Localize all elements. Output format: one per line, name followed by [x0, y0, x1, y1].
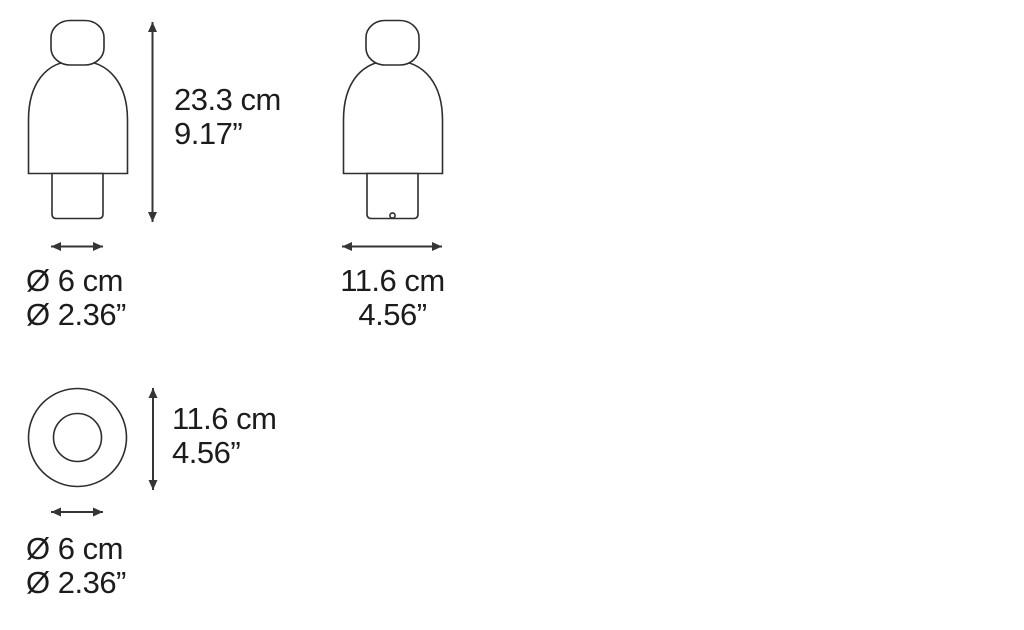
top-view-inner-diameter-label: Ø 6 cm Ø 2.36” — [26, 532, 126, 600]
lamp-front-view — [29, 21, 128, 219]
top-view-inner-diameter-inch: Ø 2.36” — [26, 566, 126, 600]
diagram-linework — [0, 0, 1024, 630]
top-view-outer-circle — [29, 389, 127, 487]
top-view-height-label: 11.6 cm 4.56” — [172, 402, 276, 470]
front-height-cm: 23.3 cm — [174, 83, 281, 117]
side-width-inch: 4.56” — [338, 298, 447, 332]
front-height-label: 23.3 cm 9.17” — [174, 83, 281, 151]
cable-exit-detail — [390, 213, 395, 218]
top-view-inner-diameter-cm: Ø 6 cm — [26, 532, 126, 566]
lamp-base-cylinder — [52, 174, 103, 219]
lamp-head-diffuser — [51, 21, 104, 66]
lamp-side-view — [344, 21, 443, 219]
dimension-diagram: 23.3 cm 9.17” Ø 6 cm Ø 2.36” 11.6 cm 4.5… — [0, 0, 1024, 630]
lamp-top-view — [29, 389, 127, 487]
front-height-inch: 9.17” — [174, 117, 281, 151]
side-width-label: 11.6 cm 4.56” — [338, 264, 447, 332]
lamp-base-cylinder — [367, 174, 418, 219]
lamp-body-dome — [344, 61, 443, 174]
front-base-diameter-label: Ø 6 cm Ø 2.36” — [26, 264, 126, 332]
lamp-head-diffuser — [366, 21, 419, 66]
front-base-diameter-inch: Ø 2.36” — [26, 298, 126, 332]
top-view-inner-circle — [54, 414, 102, 462]
side-width-cm: 11.6 cm — [338, 264, 447, 298]
front-base-diameter-cm: Ø 6 cm — [26, 264, 126, 298]
top-view-height-inch: 4.56” — [172, 436, 276, 470]
lamp-body-dome — [29, 61, 128, 174]
top-view-height-cm: 11.6 cm — [172, 402, 276, 436]
